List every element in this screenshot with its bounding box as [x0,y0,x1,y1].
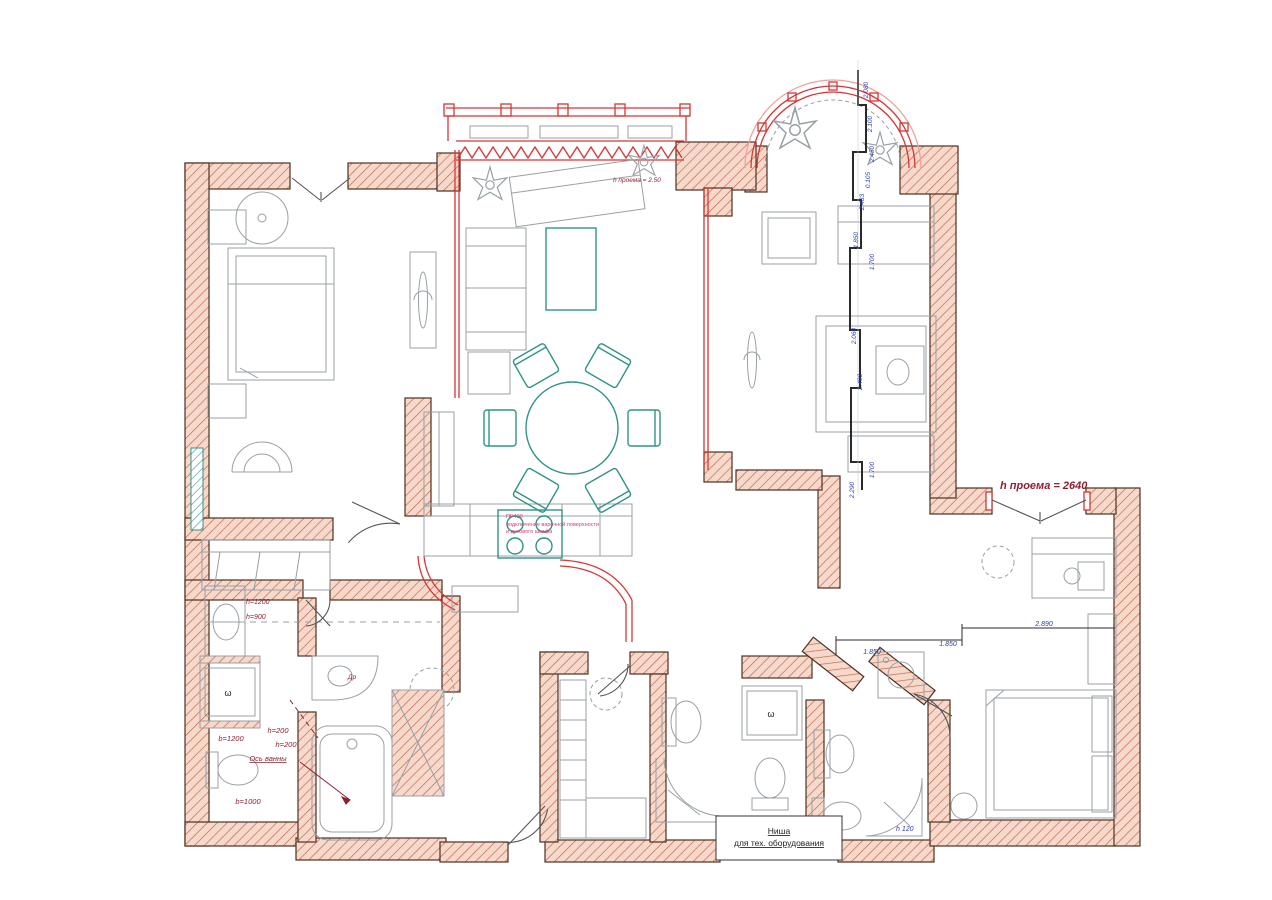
dim-h1: 1.850 [863,649,881,656]
sink-midbath [662,698,701,746]
label-niche-2: для тех. оборудования [734,838,824,848]
bed-bedroom2 [986,690,1116,818]
wardrobe-bedroom2 [1088,614,1116,684]
drain-symbol-mid: ω [767,709,774,719]
wall-bottom-left [185,822,310,846]
loggia-bench-2 [540,126,618,138]
door-bedroom1-double [292,178,350,202]
corner-shower-rightbath [866,778,922,836]
label-door-abbr: Др [347,674,357,681]
wardrobe-room-shelves [560,680,646,838]
wall-bottom-mid-b [838,840,934,862]
wall-right-lower [1114,488,1140,846]
label-niche-1: Ниша [768,826,791,836]
wall-top-left-b [348,163,438,189]
wall-bath-divider-a [298,598,316,656]
wall-wardrobe-bath [650,674,666,842]
entry-bench [452,586,518,612]
dim-h2: 1.850 [939,641,957,648]
nightstand-1 [208,210,246,244]
ceiling-light-bedroom2 [982,546,1014,578]
door-bedroom1-corridor [346,502,400,543]
dim-v5: 2.483 [859,193,866,211]
study-wardrobe [848,436,934,472]
bed-bedroom1 [228,248,334,380]
label-ledge-2: h=200 [275,740,297,749]
nightstand-bedroom2 [951,793,977,819]
label-cooktop-note-2: и духового шкафа [506,529,553,535]
wall-wardrobe-left [540,652,558,842]
ceiling-light-wardrobe [590,678,622,710]
label-cooktop-note-1: подключение варочной поверхности [506,521,599,528]
wall-wardrobe-top-a [540,652,588,674]
wall-bottom-right [930,820,1116,846]
loggia-bench-1 [470,126,528,138]
label-ledge-1: h=200 [267,726,289,735]
wall-arch-right [900,146,958,194]
label-mirror-h1: h=1200 [246,599,270,606]
radiator-strip [191,448,203,530]
label-opening-height-small: h проема = 2.50 [613,177,661,184]
dim-v10: 1.700 [869,461,876,478]
sofa-living [466,228,526,350]
insulation-zigzag [458,147,682,158]
wall-closet-top [185,518,333,540]
hall-wardrobe [392,690,444,796]
loggia-bench-3 [628,126,672,138]
vanity-bath2 [312,656,378,700]
dim-v8: 2.060 [851,327,858,345]
label-shower-width: b=1200 [218,734,244,743]
wall-bottom-bath2 [296,838,446,860]
ceiling-light-bedroom1 [236,192,288,244]
label-bath-axis: Ось ванны [249,754,287,763]
nightstand-2 [208,384,246,418]
dim-v6: 1.850 [853,231,860,248]
wall-entry-left [442,596,460,692]
side-table-living [468,352,510,394]
door-wardrobe-room [598,664,630,696]
dim-v3: 2.450 [869,145,876,163]
wall-study-bottom [736,470,822,490]
label-bath-width: b=1000 [235,797,261,806]
wall-step-corner [437,153,460,191]
drain-symbol-left: ω [224,688,231,698]
sofa-tilted [509,159,645,227]
study-cabinet-1 [762,212,816,264]
wall-bedroom2-left [928,700,950,822]
dim-v9: 2.493 [857,373,864,391]
bathtub [312,726,392,840]
dim-v7: 1.700 [869,253,876,270]
wall-top-mid [676,142,756,190]
label-cooktop-code: ПР430 [506,514,523,520]
study-bed [816,316,936,432]
study-cabinet-1-inner [768,218,810,258]
dim-v11: 2.290 [849,481,856,499]
dining-table [526,382,618,474]
floor-plan-drawing: h проема = 2640 h проема = 2.50 Ниша для… [0,0,1272,900]
plant-living-left [473,167,507,199]
dim-v2: 2.100 [867,115,874,133]
dim-v1: 2.080 [863,81,870,99]
wall-corridor-chunk [818,476,840,588]
green-table [546,228,596,310]
wall-bottom-entry [440,842,508,862]
tv-study [748,332,757,388]
desk-bedroom2 [1032,538,1116,598]
tv-console-bedroom1 [410,252,436,348]
dim-h3: 2.890 [1034,621,1053,628]
door-bedroom2-double [992,500,1086,524]
wall-bottom-mid-a [545,840,720,862]
armchair-bedroom1 [232,442,292,472]
label-shower-step: h 120 [896,826,914,833]
dim-v4: 0.105 [865,171,872,188]
floor-plan-page: h проема = 2640 h проема = 2.50 Ниша для… [0,0,1272,900]
label-opening-height: h проема = 2640 [1000,480,1088,492]
wall-wardrobe-top-b [630,652,668,674]
wall-midbath-top [742,656,812,678]
toilet-midbath [752,758,788,810]
label-mirror-h2: h=900 [246,614,266,621]
wall-bedroom1-kitchen [405,398,431,516]
